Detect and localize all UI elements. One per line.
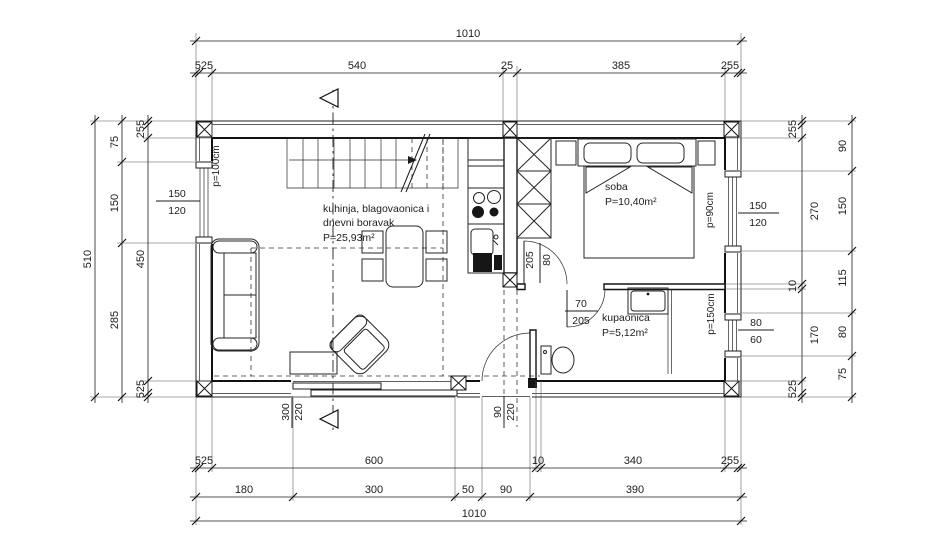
dim-bot1-2: 600: [365, 455, 383, 467]
door-entry-num: 90: [492, 406, 504, 418]
sliding-door: [291, 380, 457, 398]
floor-plan-canvas: 1010 525 540 25 385 255 525 600 10 340 2…: [0, 0, 942, 558]
sofa: [211, 239, 259, 351]
window-bath-parapet: p=150cm: [706, 293, 717, 334]
window-bedroom-num: 150: [749, 200, 767, 212]
dim-bot2-1: 180: [235, 484, 253, 496]
window-left-den: 120: [168, 205, 186, 217]
column-bottom-mid: [451, 376, 466, 390]
window-left-num: 150: [168, 188, 186, 200]
toilet: [541, 346, 574, 374]
window-left-parapet: p=100cm: [211, 145, 222, 186]
door-sliding-label: 300 220: [280, 396, 305, 428]
dim-right-o2: 150: [837, 197, 849, 215]
dim-bot1-5: 255: [721, 455, 739, 467]
dim-bot2-3: 50: [462, 484, 474, 496]
dim-left-o2: 150: [109, 194, 121, 212]
dim-right-i1: 255: [787, 120, 799, 138]
section-marker-top: [320, 89, 338, 107]
window-bathroom: [724, 313, 743, 358]
section-marker-bottom: [320, 410, 338, 428]
dim-right-i4: 170: [809, 326, 821, 344]
dim-right-o1: 90: [837, 140, 849, 152]
dim-left-i3: 525: [135, 380, 147, 398]
column-top-mid: [503, 122, 517, 137]
dim-top-5: 255: [721, 60, 739, 72]
door-entry-label: 90 220: [492, 396, 517, 428]
dim-right-i3: 10: [787, 280, 799, 292]
dim-right-i2: 270: [809, 202, 821, 220]
column-bottom-left: [197, 381, 212, 396]
dim-right-i5: 525: [787, 380, 799, 398]
dim-left-i1: 255: [135, 120, 147, 138]
dim-left-i2: 450: [135, 250, 147, 268]
door-bathroom-label: 70 205: [565, 298, 598, 327]
entry-door: [480, 333, 537, 398]
dim-bottom-total: 1010: [462, 508, 486, 520]
window-bedroom-den: 120: [749, 217, 767, 229]
room-living-line1: kuhinja, blagovaonica i: [323, 203, 429, 215]
dim-bot1-3: 10: [532, 455, 544, 467]
staircase: [287, 134, 458, 192]
window-bedroom: [724, 170, 743, 253]
dim-right-o3: 115: [837, 269, 849, 287]
dim-right-o4: 80: [837, 326, 849, 338]
dim-bot2-4: 90: [500, 484, 512, 496]
dim-top-2: 540: [348, 60, 366, 72]
sideboard: [290, 352, 337, 374]
dim-top-1: 525: [195, 60, 213, 72]
door-bath-num: 70: [575, 298, 587, 310]
dim-left-o3: 285: [109, 311, 121, 329]
dim-left-total: 510: [82, 250, 94, 268]
door-sliding-den: 220: [293, 403, 305, 421]
column-bottom-right: [724, 381, 739, 396]
room-living-line2: dnevni boravak: [323, 217, 395, 229]
column-top-right: [724, 122, 739, 137]
window-bath-num: 80: [750, 317, 762, 329]
dim-bot1-1: 525: [195, 455, 213, 467]
dim-bot1-4: 340: [624, 455, 642, 467]
dimension-text: 1010 525 540 25 385 255 525 600 10 340 2…: [82, 28, 849, 520]
window-bedroom-parapet: p=90cm: [705, 192, 716, 228]
dim-top-4: 385: [612, 60, 630, 72]
room-bathroom-name: kupaonica: [602, 312, 650, 324]
window-bath-den: 60: [750, 334, 762, 346]
dim-bot2-5: 390: [626, 484, 644, 496]
door-bedroom-num: 80: [541, 254, 553, 266]
dim-bot2-2: 300: [365, 484, 383, 496]
door-sliding-num: 300: [280, 403, 292, 421]
door-bath-den: 205: [572, 315, 590, 327]
door-entry-den: 220: [505, 403, 517, 421]
dim-top-3: 25: [501, 60, 513, 72]
section-line: [320, 89, 338, 430]
kitchen-counter: [468, 138, 504, 273]
room-bedroom-area: P=10,40m²: [605, 196, 657, 208]
column-mid: [503, 273, 517, 287]
room-living-area: P=25,93m²: [323, 232, 375, 244]
dim-top-total: 1010: [456, 28, 480, 40]
column-top-left: [197, 122, 212, 137]
dining-table: [362, 226, 447, 287]
washbasin: [628, 288, 668, 314]
dim-left-o1: 75: [109, 136, 121, 148]
room-bedroom-name: soba: [605, 181, 628, 193]
dim-right-o5: 75: [837, 368, 849, 380]
door-bedroom-den: 205: [524, 251, 536, 269]
wardrobe: [517, 138, 551, 238]
room-bathroom-area: P=5,12m²: [602, 327, 648, 339]
